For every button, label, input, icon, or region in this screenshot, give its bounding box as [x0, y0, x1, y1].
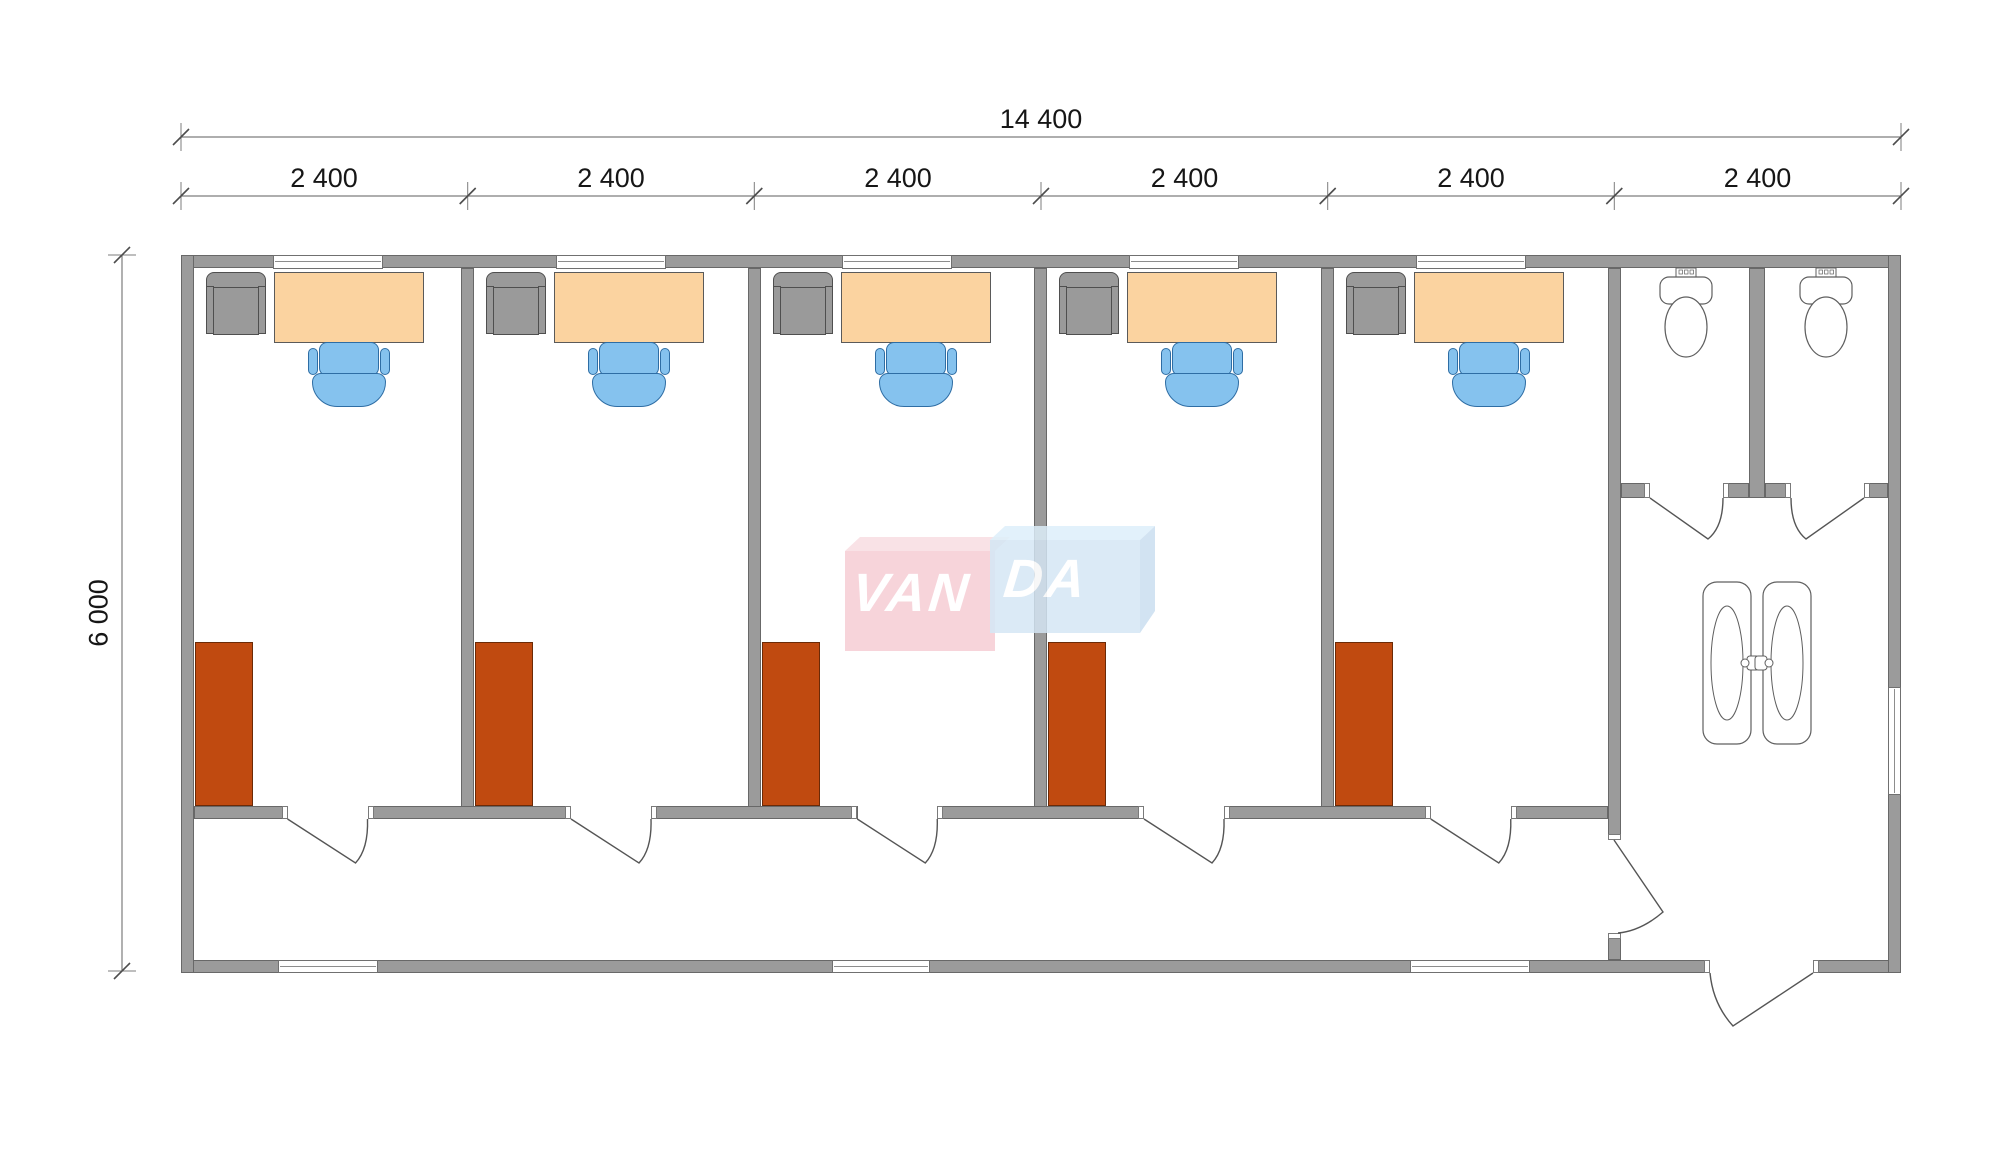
dimension-label-segment-3: 2 400 [864, 163, 932, 194]
office-2-wardrobe [475, 642, 533, 806]
office-1-door [288, 819, 368, 863]
office-5-chair-back-cushion [1452, 373, 1526, 407]
wc-right-toilet-cistern-detail-1 [1825, 270, 1829, 274]
dim-h-slash-1 [114, 963, 130, 979]
wc-right-toilet-bowl [1805, 297, 1847, 357]
office-5-door [1431, 819, 1511, 863]
hall-door-jamb-top [1608, 834, 1621, 840]
office-5-door-jamb-right [1511, 806, 1517, 819]
wc-left-toilet-lid [1660, 277, 1712, 304]
floor-plan: 14 400 2 4002 4002 4002 4002 4002 400 6 … [0, 0, 2000, 1172]
office-2-door-jamb-left [565, 806, 571, 819]
office-4-wardrobe [1048, 642, 1106, 806]
office-1-guest-chair-seat [213, 287, 259, 335]
wc-left-toilet-bowl [1665, 297, 1707, 357]
entrance-door [1710, 973, 1813, 1026]
dim-seg-tick-6-slash [1893, 188, 1909, 204]
wc-left-toilet-cistern [1676, 268, 1696, 277]
office-1-window-frame-line [275, 261, 381, 262]
wc-right-door [1791, 498, 1864, 539]
wc-right-toilet [1800, 268, 1852, 357]
office-4-guest-chair-seat [1066, 287, 1112, 335]
wc-left-sink [1703, 582, 1759, 744]
office-3-desk [841, 272, 991, 343]
office-5-door-jamb-left [1425, 806, 1431, 819]
wc-right-sink-faucet [1765, 659, 1773, 667]
office-1-chair-armrest-right [380, 348, 390, 375]
outer-wall-top [181, 255, 1901, 268]
office-1-guest-chair-armrest-right [258, 286, 266, 334]
corridor-wall-segment-1 [194, 806, 288, 819]
wc-right-sink [1755, 582, 1811, 744]
office-3-guest-chair-armrest-right [825, 286, 833, 334]
dimension-label-segment-4: 2 400 [1151, 163, 1219, 194]
office-5-guest-chair-armrest-right [1398, 286, 1406, 334]
wc-left-door-jamb-left [1644, 483, 1650, 498]
office-4-door [1144, 819, 1224, 863]
wc-middle-wall [1749, 268, 1765, 498]
office-5-chair-armrest-left [1448, 348, 1458, 375]
office-3-door-jamb-left [851, 806, 857, 819]
office-1-chair-back-cushion [312, 373, 386, 407]
office-2-window-frame-line [558, 261, 664, 262]
dim-seg-tick-5-slash [1606, 188, 1622, 204]
office-2-chair-back-cushion [592, 373, 666, 407]
office-1-chair-armrest-left [308, 348, 318, 375]
corridor-wall-segment-6 [1511, 806, 1608, 819]
office-4-chair-seat [1172, 342, 1232, 376]
office-2-chair-armrest-right [660, 348, 670, 375]
wc-left-sink-faucet [1741, 659, 1749, 667]
office-5-chair-seat [1459, 342, 1519, 376]
dimension-label-segment-1: 2 400 [290, 163, 358, 194]
wc-left-toilet-cistern-detail-0 [1679, 270, 1683, 274]
wc-left-door-jamb-right [1723, 483, 1729, 498]
wc-left-sink-basin [1711, 606, 1743, 720]
office-5-wardrobe [1335, 642, 1393, 806]
outer-wall-left [181, 255, 194, 973]
office-1-wardrobe [195, 642, 253, 806]
office-5-guest-chair-seat [1353, 287, 1399, 335]
corridor-wall-segment-5 [1224, 806, 1431, 819]
office-3-door-jamb-right [937, 806, 943, 819]
office-4-window-frame-line [1131, 261, 1237, 262]
office-4-guest-chair-armrest-right [1111, 286, 1119, 334]
office-5-window-frame-line [1418, 261, 1524, 262]
office-divider-wall-2 [748, 268, 761, 819]
office-3-chair-back-cushion [879, 373, 953, 407]
corridor-window-middle-frame-line [834, 966, 928, 967]
office-3-wardrobe [762, 642, 820, 806]
office-divider-wall-4 [1321, 268, 1334, 819]
dim-seg-tick-3-slash [1033, 188, 1049, 204]
vanda-watermark-logo: VAN DA [840, 518, 1170, 658]
office-3-chair-armrest-right [947, 348, 957, 375]
dim-total-tick-right-slash [1893, 129, 1909, 145]
dim-total-tick-left-slash [173, 129, 189, 145]
dim-seg-tick-1-slash [460, 188, 476, 204]
dim-seg-tick-4-slash [1320, 188, 1336, 204]
wc-right-toilet-cistern [1816, 268, 1836, 277]
dim-h-slash-0 [114, 247, 130, 263]
hall-window-bottom-frame-line [1412, 966, 1528, 967]
wc-right-door-jamb-left [1785, 483, 1791, 498]
office-3-chair-seat [886, 342, 946, 376]
office-4-desk [1127, 272, 1277, 343]
hall-window-right-frame-line [1894, 689, 1895, 793]
corridor-wall-segment-4 [938, 806, 1145, 819]
office-2-door-jamb-right [651, 806, 657, 819]
wc-right-sink-counter [1763, 582, 1811, 744]
dimension-label-height: 6 000 [84, 579, 115, 647]
office-3-guest-chair-seat [780, 287, 826, 335]
entrance-door-jamb-right [1813, 960, 1819, 973]
office-1-door-jamb-left [282, 806, 288, 819]
wc-right-sink-basin [1771, 606, 1803, 720]
logo-text-da: DA [1001, 548, 1092, 610]
outer-wall-right [1888, 255, 1901, 973]
office-1-door-jamb-right [368, 806, 374, 819]
office-2-chair-seat [599, 342, 659, 376]
wc-right-sink-tap [1755, 656, 1767, 670]
office-1-desk [274, 272, 424, 343]
dimension-label-total-width: 14 400 [1000, 104, 1083, 135]
office-4-chair-armrest-left [1161, 348, 1171, 375]
office-2-door [571, 819, 651, 863]
logo-text-van: VAN [849, 562, 975, 624]
office-2-desk [554, 272, 704, 343]
wc-left-sink-counter [1703, 582, 1751, 744]
office-2-guest-chair-seat [493, 287, 539, 335]
office-4-door-jamb-right [1224, 806, 1230, 819]
wc-right-toilet-lid [1800, 277, 1852, 304]
office-4-chair-armrest-right [1233, 348, 1243, 375]
wc-right-door-jamb-right [1864, 483, 1870, 498]
dimension-label-segment-5: 2 400 [1437, 163, 1505, 194]
hall-door-jamb-bottom [1608, 933, 1621, 939]
office-5-desk [1414, 272, 1564, 343]
wc-right-toilet-cistern-detail-2 [1830, 270, 1834, 274]
entrance-door-jamb-left [1704, 960, 1710, 973]
wc-left-toilet-cistern-detail-2 [1690, 270, 1694, 274]
office-2-chair-armrest-left [588, 348, 598, 375]
dim-seg-tick-0-slash [173, 188, 189, 204]
corridor-window-left-frame-line [280, 966, 376, 967]
office-2-guest-chair-armrest-right [538, 286, 546, 334]
hall-divider-wall-upper [1608, 268, 1621, 840]
office-divider-wall-1 [461, 268, 474, 819]
office-3-door [857, 819, 937, 863]
wc-left-door [1650, 498, 1723, 539]
office-3-chair-armrest-left [875, 348, 885, 375]
office-5-chair-armrest-right [1520, 348, 1530, 375]
hall-inner-door [1614, 840, 1663, 933]
wc-left-toilet [1660, 268, 1712, 357]
wc-left-toilet-cistern-detail-1 [1685, 270, 1689, 274]
wc-right-toilet-cistern-detail-0 [1819, 270, 1823, 274]
wc-left-sink-tap [1747, 656, 1759, 670]
office-3-window-frame-line [844, 261, 950, 262]
office-4-door-jamb-left [1138, 806, 1144, 819]
office-4-chair-back-cushion [1165, 373, 1239, 407]
corridor-wall-segment-2 [368, 806, 572, 819]
corridor-wall-segment-3 [651, 806, 858, 819]
dim-seg-tick-2-slash [746, 188, 762, 204]
office-1-chair-seat [319, 342, 379, 376]
dimension-label-segment-6: 2 400 [1724, 163, 1792, 194]
dimension-label-segment-2: 2 400 [577, 163, 645, 194]
